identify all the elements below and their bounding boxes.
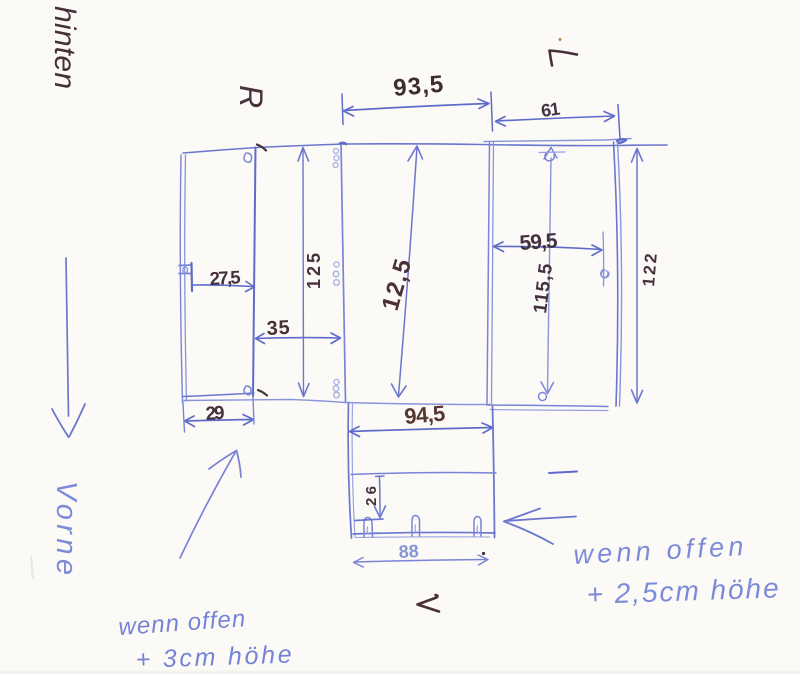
svg-text:+ 3cm höhe: + 3cm höhe xyxy=(135,641,292,674)
svg-text:93,5: 93,5 xyxy=(392,71,444,102)
svg-text:88: 88 xyxy=(398,541,419,562)
svg-text:59,5: 59,5 xyxy=(519,229,559,255)
svg-text:27,5: 27,5 xyxy=(209,266,241,289)
svg-text:29: 29 xyxy=(205,403,225,425)
svg-text:61: 61 xyxy=(540,99,562,121)
svg-text:125: 125 xyxy=(304,253,324,289)
svg-text:94,5: 94,5 xyxy=(403,401,446,429)
svg-text:hinten: hinten xyxy=(48,6,81,90)
svg-text:R: R xyxy=(233,85,269,108)
svg-text:122: 122 xyxy=(639,253,661,288)
svg-text:Vorne: Vorne xyxy=(50,481,82,577)
svg-text:35: 35 xyxy=(266,317,290,340)
